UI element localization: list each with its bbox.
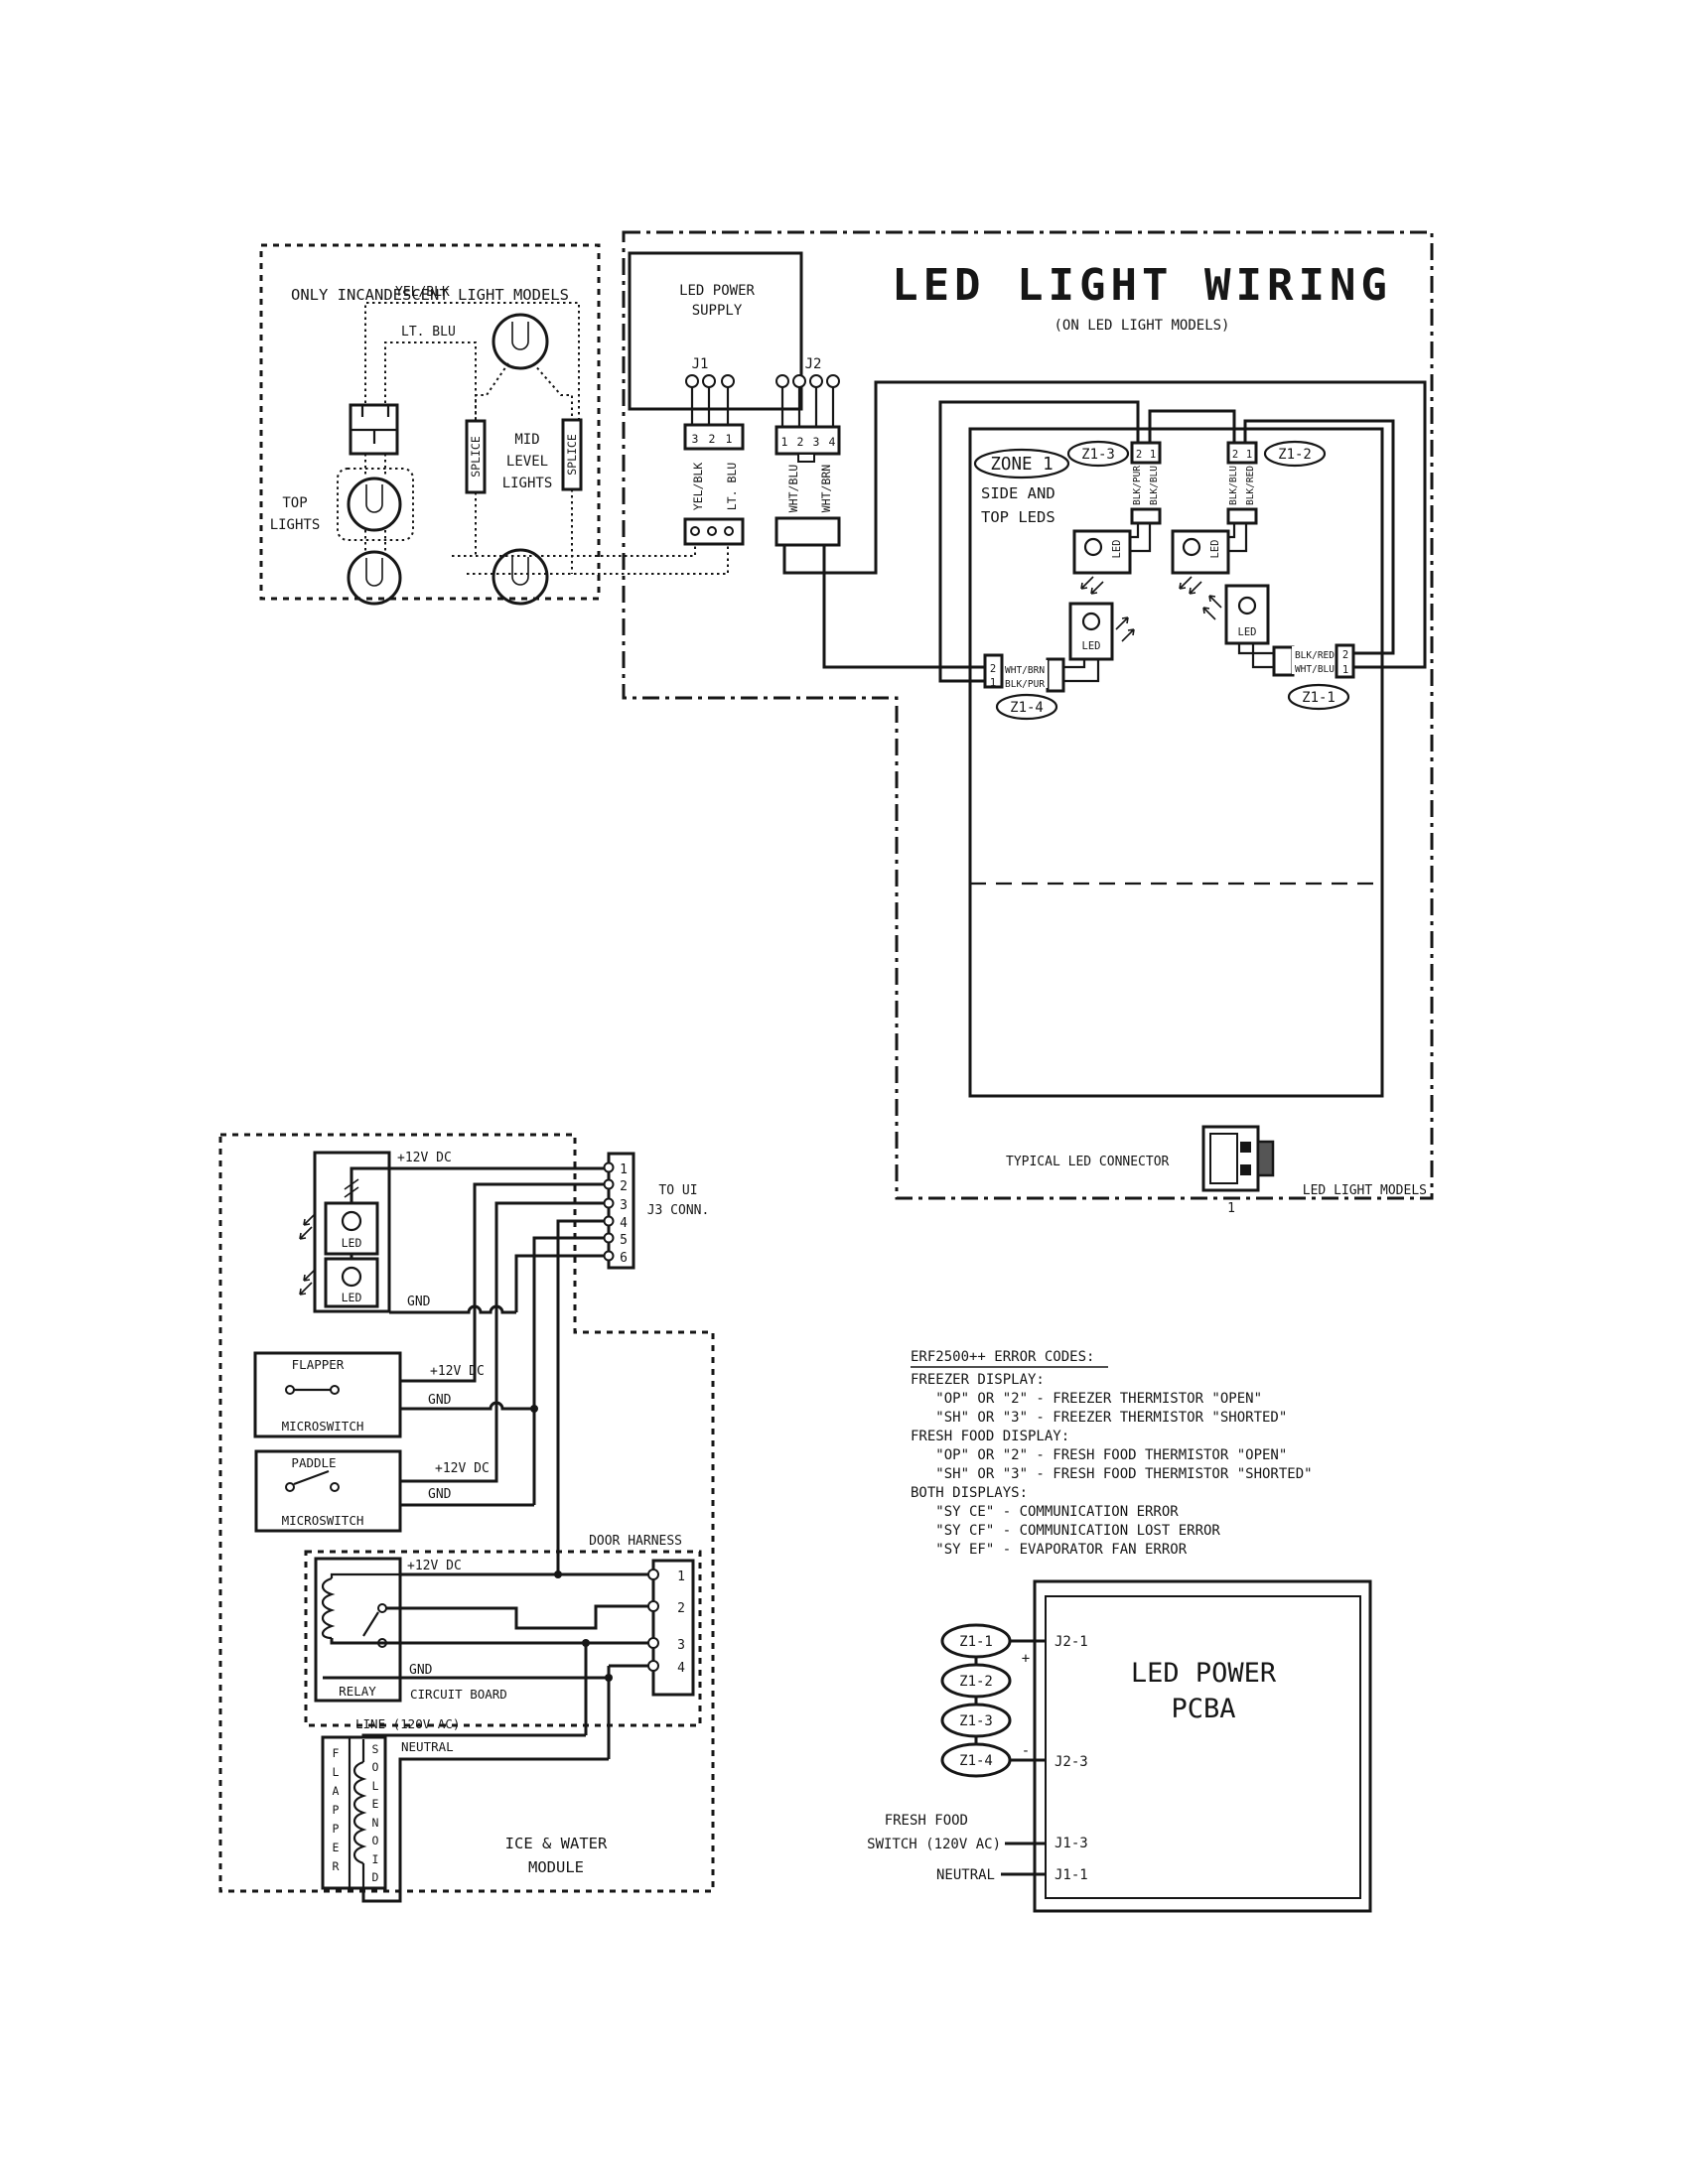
pin-label: 1 xyxy=(990,677,996,689)
typical-connector-label: TYPICAL LED CONNECTOR xyxy=(1006,1155,1170,1169)
pcba-title: PCBA xyxy=(1171,1694,1235,1724)
flapper-letter: A xyxy=(333,1784,340,1798)
flapper-letter: L xyxy=(333,1765,340,1779)
section-subtitle: (ON LED LIGHT MODELS) xyxy=(1054,318,1229,334)
flapper-label: FLAPPER xyxy=(292,1357,345,1372)
led-label: LED xyxy=(1111,540,1123,559)
ui-terminal xyxy=(605,1180,614,1189)
j2-pin: 3 xyxy=(813,435,820,449)
neutral-label: NEUTRAL xyxy=(936,1867,995,1883)
j2-wire-label: WHT/BRN xyxy=(819,465,833,513)
section-title: LED LIGHT WIRING xyxy=(892,260,1392,311)
junction-dot xyxy=(582,1639,590,1647)
wire-color-label: BLK/PUR xyxy=(1005,679,1045,690)
j1-3-label: J1-3 xyxy=(1055,1836,1088,1851)
j1-pin: 2 xyxy=(709,432,716,446)
neutral-wire xyxy=(363,1759,609,1901)
flapper-letter: P xyxy=(333,1803,340,1817)
error-code-line: "SY CE" - COMMUNICATION ERROR xyxy=(911,1504,1179,1520)
door-pin: 4 xyxy=(677,1661,685,1676)
connector-latch-icon xyxy=(1258,1142,1273,1175)
flapper-letter: P xyxy=(333,1822,340,1836)
v12-label: +12V DC xyxy=(397,1151,452,1165)
connector-pin-number: 1 xyxy=(1227,1201,1235,1216)
switch-terminal xyxy=(331,1386,339,1394)
ui-pin: 4 xyxy=(620,1216,628,1231)
led-light-models-label: LED LIGHT MODELS xyxy=(1303,1183,1427,1198)
switch-terminal xyxy=(286,1483,294,1491)
pin-label: 1 xyxy=(1246,449,1252,461)
line-label: LINE (120V AC) xyxy=(355,1716,460,1731)
solenoid-letter: D xyxy=(372,1870,379,1884)
terminal-icon xyxy=(776,375,788,387)
paddle-microswitch-group: PADDLE MICROSWITCH xyxy=(256,1451,400,1531)
pcba-title: LED POWER xyxy=(1131,1658,1277,1689)
v12-label: +12V DC xyxy=(430,1364,485,1379)
door-pin: 1 xyxy=(677,1570,685,1584)
flapper-letter: E xyxy=(333,1841,340,1854)
wht-brn-wire xyxy=(824,545,985,667)
ui-pin: 6 xyxy=(620,1251,628,1266)
ui-terminal xyxy=(605,1199,614,1208)
solenoid-letter: S xyxy=(372,1742,379,1756)
ui-terminal xyxy=(605,1234,614,1243)
j1-wire-label: LT. BLU xyxy=(725,463,739,511)
fresh-food-label: SWITCH (120V AC) xyxy=(867,1837,1001,1852)
error-code-line: FRESH FOOD DISPLAY: xyxy=(911,1429,1069,1444)
led-label: LED xyxy=(342,1236,362,1250)
door-pin: 2 xyxy=(677,1601,685,1616)
error-code-line: "SH" OR "3" - FREEZER THERMISTOR "SHORTE… xyxy=(911,1410,1287,1426)
j1-pin: 3 xyxy=(692,432,699,446)
splice-label: SPLICE xyxy=(469,436,483,478)
j2-wire-label: WHT/BLU xyxy=(786,465,800,513)
mid-level-label: LIGHTS xyxy=(502,476,553,491)
ice-water-module-label: MODULE xyxy=(528,1858,584,1876)
flapper-solenoid-group: F L A P P E R S O L E N O I D xyxy=(323,1737,385,1888)
gnd-label: GND xyxy=(409,1663,433,1678)
z1-4-label: Z1-4 xyxy=(1010,700,1044,716)
door-terminal xyxy=(648,1638,658,1648)
led-power-supply-box xyxy=(630,253,801,409)
wire-pin5 xyxy=(534,1238,609,1505)
pin-label: 1 xyxy=(1150,449,1156,461)
gnd-label: GND xyxy=(428,1393,452,1408)
j2-pin: 4 xyxy=(829,435,836,449)
relay-switch-wire xyxy=(386,1606,648,1628)
pin-label: 2 xyxy=(1232,449,1238,461)
solenoid-letter: E xyxy=(372,1797,379,1811)
connector-pin-icon xyxy=(1240,1142,1251,1153)
v12-label: +12V DC xyxy=(407,1559,462,1573)
error-code-line: "SY CF" - COMMUNICATION LOST ERROR xyxy=(911,1523,1220,1539)
z-oval-label: Z1-4 xyxy=(959,1753,993,1769)
ice-water-section: +12V DC LED LED GND 1 2 3 4 5 6 TO UI J3… xyxy=(220,1135,713,1901)
error-codes-block: ERF2500++ ERROR CODES: FREEZER DISPLAY: … xyxy=(911,1349,1313,1558)
led-plug xyxy=(1274,647,1293,675)
light-emission-icon xyxy=(300,1283,312,1295)
door-terminal xyxy=(648,1661,658,1671)
wiring-diagram-canvas: ONLY INCANDESCENT LIGHT MODELS YEL/BLK L… xyxy=(0,0,1688,2184)
ui-terminal xyxy=(605,1217,614,1226)
junction-dot xyxy=(605,1674,613,1682)
pin-label: 1 xyxy=(1342,664,1348,676)
led-plug xyxy=(1228,509,1256,523)
relay-group: RELAY xyxy=(316,1559,400,1701)
error-codes-title: ERF2500++ ERROR CODES: xyxy=(911,1349,1094,1365)
terminal-icon xyxy=(793,375,805,387)
z-oval-label: Z1-1 xyxy=(959,1634,993,1650)
supply-label: SUPPLY xyxy=(692,303,743,319)
gnd-label: GND xyxy=(428,1487,452,1502)
j2-pin: 1 xyxy=(781,435,788,449)
microswitch-label: MICROSWITCH xyxy=(282,1419,364,1433)
circuit-board-label: CIRCUIT BOARD xyxy=(410,1687,507,1702)
led-label: LED xyxy=(1082,640,1101,652)
j2-plug xyxy=(776,518,839,545)
error-code-line: FREEZER DISPLAY: xyxy=(911,1372,1045,1388)
wire-pin4 xyxy=(558,1221,609,1574)
switch-terminal xyxy=(331,1483,339,1491)
solenoid-letter: O xyxy=(372,1834,379,1847)
terminal-icon xyxy=(703,375,715,387)
j2-label: J2 xyxy=(805,356,822,372)
zone1-desc: SIDE AND xyxy=(981,484,1055,502)
led-wiring-section: LED LIGHT WIRING (ON LED LIGHT MODELS) L… xyxy=(624,232,1432,1216)
wire-color-label: BLK/BLU xyxy=(1149,466,1160,505)
wire-color-label: BLK/PUR xyxy=(1132,466,1143,505)
j1-pin: 1 xyxy=(726,432,733,446)
z1-3-label: Z1-3 xyxy=(1081,447,1115,463)
ui-pin: 2 xyxy=(620,1179,628,1194)
j1-label: J1 xyxy=(692,356,709,372)
wire-color-label: WHT/BLU xyxy=(1295,664,1335,675)
top-lights-label: LIGHTS xyxy=(270,517,321,533)
error-code-line: "OP" OR "2" - FREEZER THERMISTOR "OPEN" xyxy=(911,1391,1262,1407)
connector-cavity xyxy=(1210,1134,1237,1183)
zone1-label: ZONE 1 xyxy=(990,455,1053,475)
z-oval-label: Z1-2 xyxy=(959,1674,993,1690)
led-label: LED xyxy=(342,1291,362,1304)
pcba-inner-box xyxy=(1046,1596,1360,1898)
terminal-icon xyxy=(810,375,822,387)
line-wire xyxy=(363,1735,586,1739)
light-socket-connector-icon xyxy=(351,405,397,454)
switch-terminal xyxy=(286,1386,294,1394)
gnd-label: GND xyxy=(407,1295,431,1309)
plug-hole xyxy=(725,527,733,535)
zone1-box xyxy=(970,429,1382,1096)
fresh-food-label: FRESH FOOD xyxy=(885,1813,968,1829)
j1-1-label: J1-1 xyxy=(1055,1867,1088,1883)
relay-terminal xyxy=(378,1604,386,1612)
pin-label: 2 xyxy=(990,663,996,675)
solenoid-letter: L xyxy=(372,1779,379,1793)
v12-label: +12V DC xyxy=(435,1461,490,1476)
j2-notch xyxy=(798,454,814,462)
neutral-label: NEUTRAL xyxy=(401,1739,454,1754)
paddle-label: PADDLE xyxy=(291,1455,336,1470)
wiring-diagram-page: ONLY INCANDESCENT LIGHT MODELS YEL/BLK L… xyxy=(0,0,1688,2184)
ui-terminal xyxy=(605,1163,614,1172)
yel-blk-label: YEL/BLK xyxy=(395,285,450,300)
door-terminal xyxy=(648,1570,658,1579)
door-harness-label: DOOR HARNESS xyxy=(589,1534,682,1549)
ice-water-module-label: ICE & WATER xyxy=(505,1835,608,1852)
j1-wire-label: YEL/BLK xyxy=(691,463,705,511)
door-connector xyxy=(653,1561,693,1695)
led-label: LED xyxy=(1238,626,1257,638)
error-code-line: "SY EF" - EVAPORATOR FAN ERROR xyxy=(911,1542,1188,1558)
lt-blu-label: LT. BLU xyxy=(401,325,456,340)
zone1-desc: TOP LEDS xyxy=(981,508,1055,526)
plug-hole xyxy=(691,527,699,535)
supply-label: LED POWER xyxy=(679,283,755,299)
plug-hole xyxy=(708,527,716,535)
splice-label: SPLICE xyxy=(565,434,579,476)
light-emission-icon xyxy=(300,1227,312,1239)
flapper-letter: F xyxy=(333,1746,340,1760)
wire-pin6 xyxy=(516,1256,609,1312)
mid-level-label: LEVEL xyxy=(506,454,548,470)
wire-color-label: BLK/BLU xyxy=(1228,466,1239,505)
terminal-icon xyxy=(827,375,839,387)
ui-terminal xyxy=(605,1252,614,1261)
z-oval-label: Z1-3 xyxy=(959,1713,993,1729)
z1-1-label: Z1-1 xyxy=(1302,690,1336,706)
j2-pin: 2 xyxy=(797,435,804,449)
terminal-icon xyxy=(722,375,734,387)
led-label: LED xyxy=(1209,540,1221,559)
ui-pin: 1 xyxy=(620,1162,628,1177)
plus-label: + xyxy=(1022,1651,1030,1667)
led-plug xyxy=(1132,509,1160,523)
pin-label: 2 xyxy=(1342,649,1348,661)
to-ui-label: TO UI xyxy=(658,1183,697,1198)
flapper-microswitch-group: FLAPPER MICROSWITCH xyxy=(255,1353,400,1436)
solenoid-letter: O xyxy=(372,1760,379,1774)
door-pin: 3 xyxy=(677,1638,685,1653)
error-code-line: "SH" OR "3" - FRESH FOOD THERMISTOR "SHO… xyxy=(911,1466,1313,1482)
mid-level-label: MID xyxy=(514,432,539,448)
z1-2-label: Z1-2 xyxy=(1278,447,1312,463)
pcba-section: LED POWER PCBA Z1-1 Z1-2 Z1-3 Z1-4 + - J… xyxy=(867,1581,1370,1911)
junction-dot xyxy=(530,1405,538,1413)
flapper-letter: R xyxy=(333,1859,340,1873)
solenoid-letter: N xyxy=(372,1816,379,1830)
solenoid-letter: I xyxy=(372,1852,379,1866)
j2-1-label: J2-1 xyxy=(1055,1634,1088,1650)
top-lights-label: TOP xyxy=(282,495,307,511)
connector-pin-icon xyxy=(1240,1164,1251,1175)
wire-color-label: BLK/RED xyxy=(1295,650,1335,661)
typical-led-connector-group: TYPICAL LED CONNECTOR 1 xyxy=(1006,1127,1273,1216)
j2-3-label: J2-3 xyxy=(1055,1754,1088,1770)
led-plug xyxy=(1048,659,1063,691)
relay-label: RELAY xyxy=(339,1684,376,1699)
wire-color-label: BLK/RED xyxy=(1245,466,1256,505)
wire-color-label: WHT/BRN xyxy=(1005,665,1045,676)
microswitch-label: MICROSWITCH xyxy=(282,1513,364,1528)
ui-pin: 5 xyxy=(620,1233,628,1248)
to-ui-label: J3 CONN. xyxy=(647,1203,710,1218)
error-code-line: BOTH DISPLAYS: xyxy=(911,1485,1028,1501)
terminal-icon xyxy=(686,375,698,387)
pin-label: 2 xyxy=(1136,449,1142,461)
error-code-line: "OP" OR "2" - FRESH FOOD THERMISTOR "OPE… xyxy=(911,1447,1287,1463)
ui-pin: 3 xyxy=(620,1198,628,1213)
minus-label: - xyxy=(1022,1743,1030,1759)
door-terminal xyxy=(648,1601,658,1611)
